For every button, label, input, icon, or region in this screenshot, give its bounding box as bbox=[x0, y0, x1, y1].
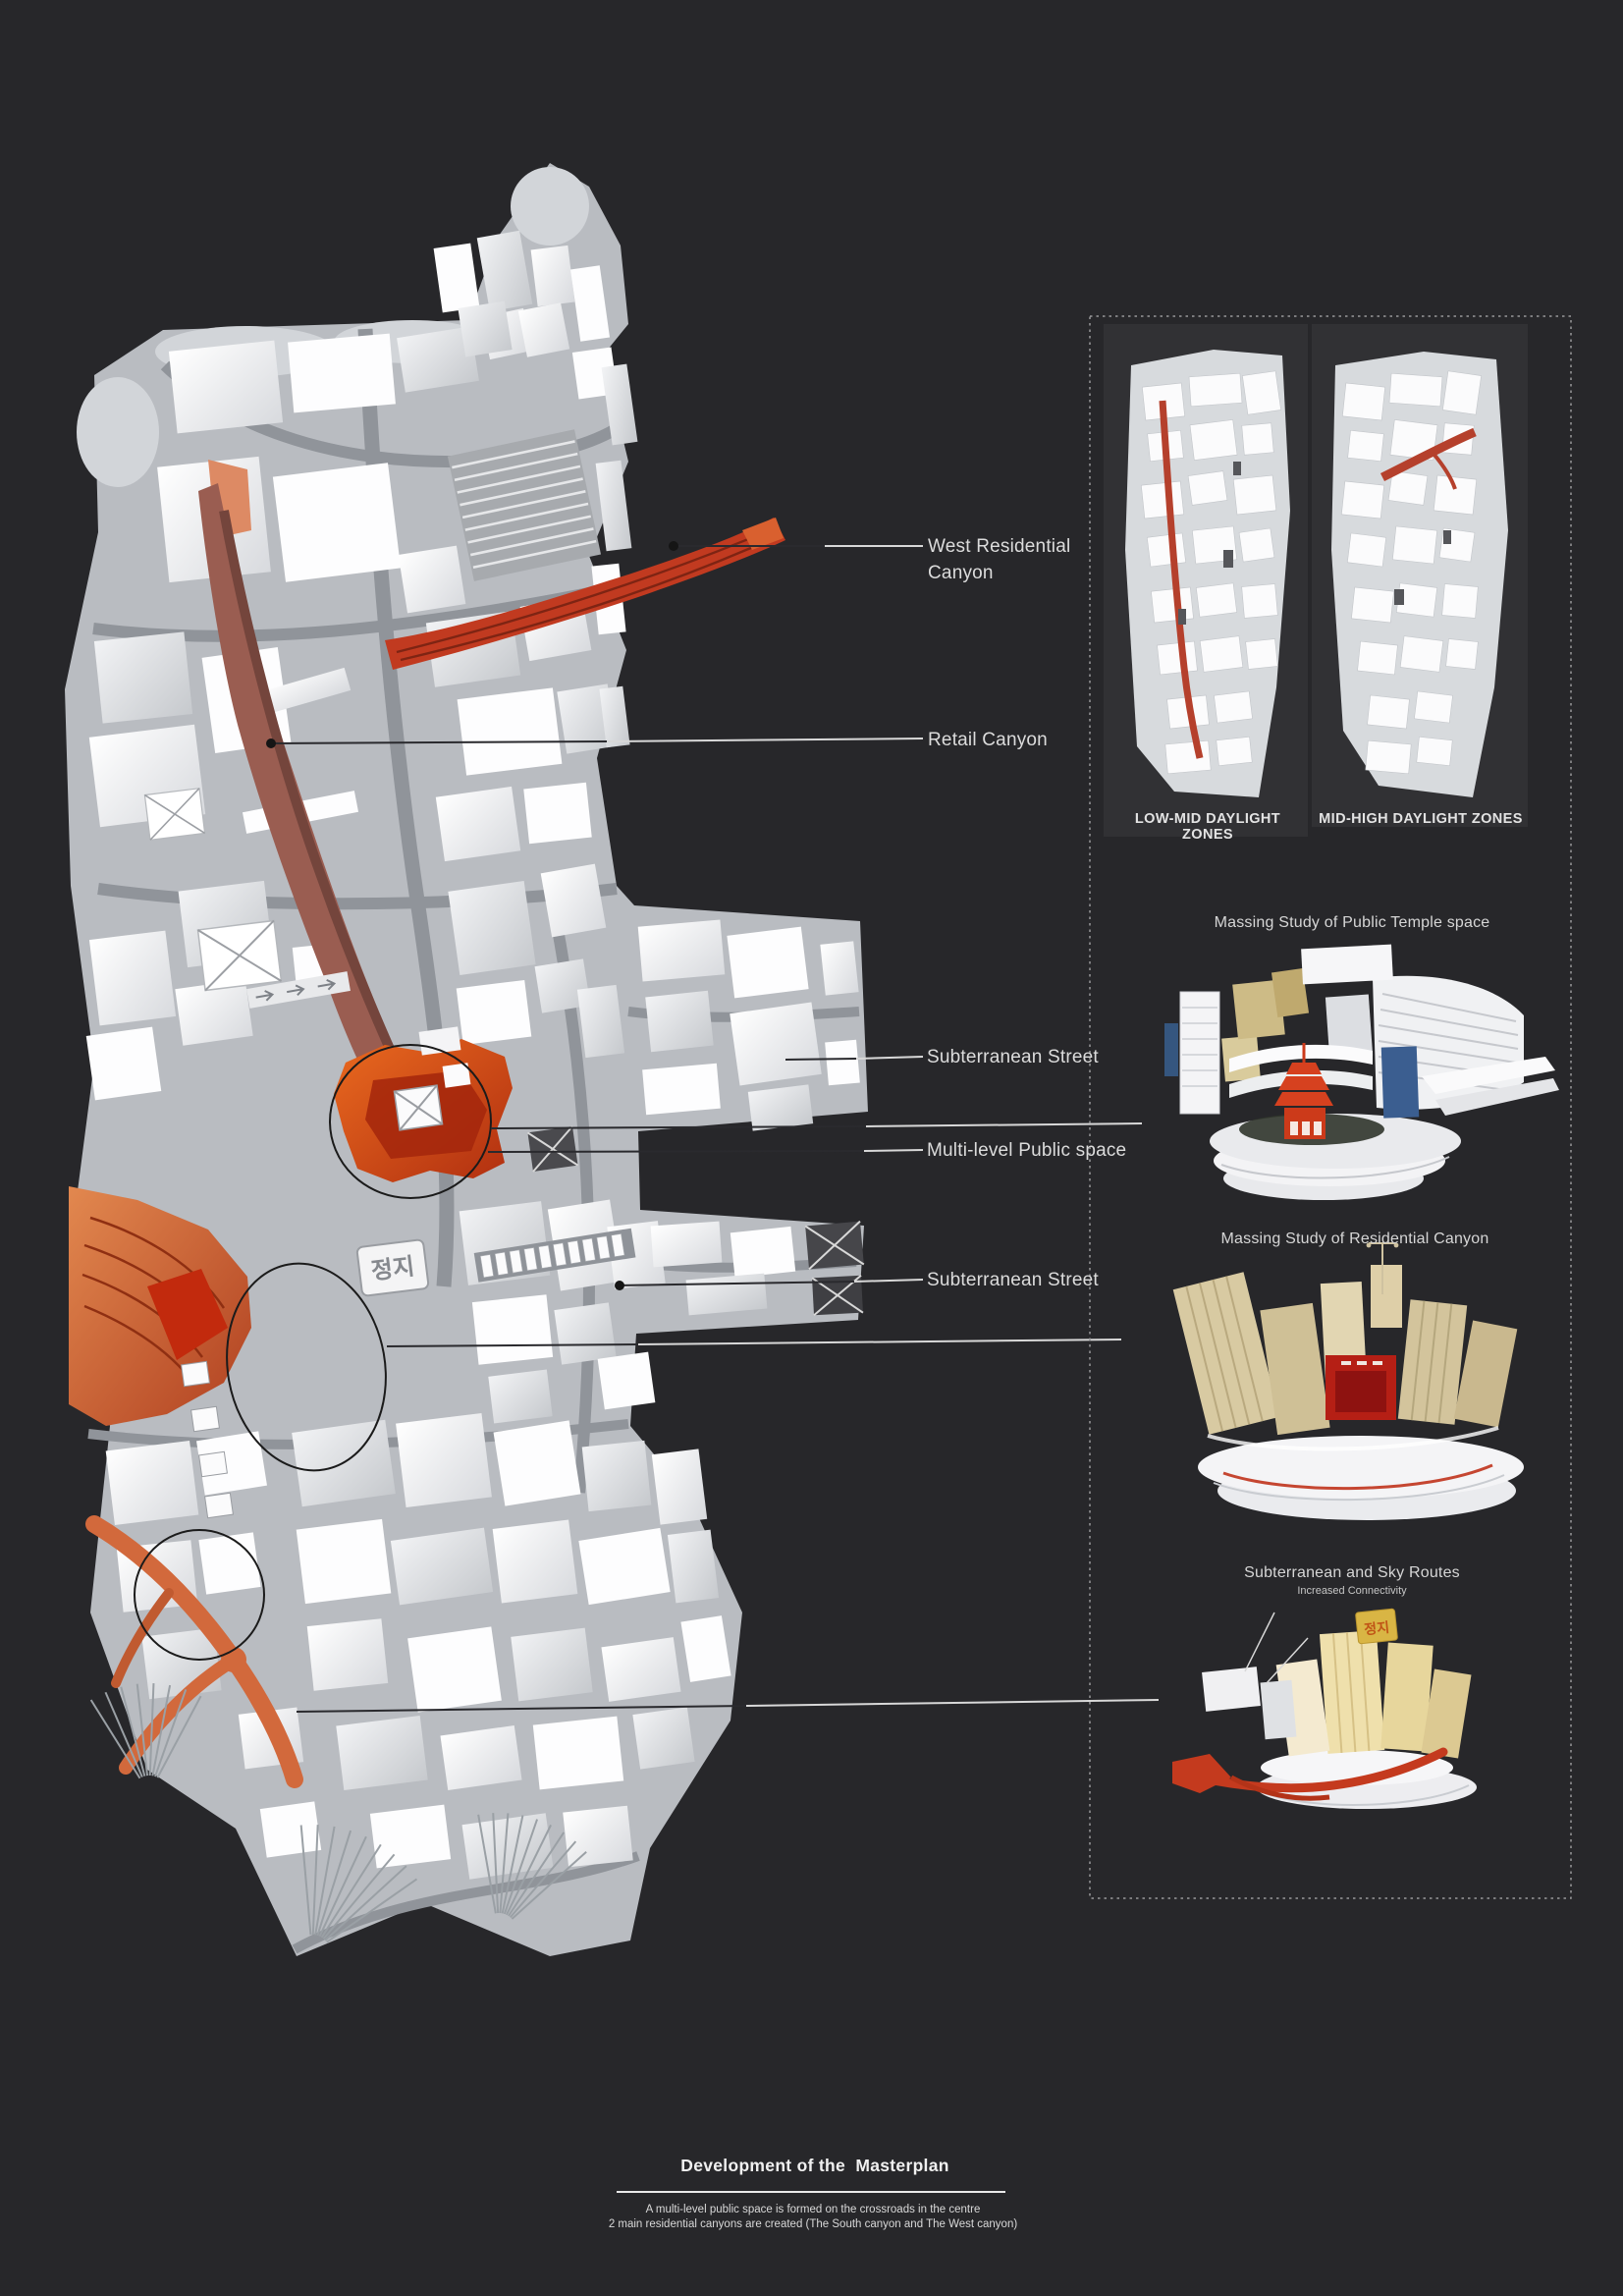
caption-mid-high-daylight: MID-HIGH DAYLIGHT ZONES bbox=[1314, 811, 1528, 827]
stop-sign-text: 정지 bbox=[370, 1253, 416, 1285]
label-subterranean-street-1: Subterranean Street bbox=[927, 1044, 1099, 1070]
title-skyroutes: Subterranean and Sky Routes bbox=[1156, 1564, 1548, 1582]
stop-sign: 정지 bbox=[356, 1239, 429, 1296]
title-massing-canyon: Massing Study of Residential Canyon bbox=[1159, 1230, 1551, 1248]
massing-canyon-image bbox=[1173, 1243, 1524, 1520]
label-subterranean-street-2: Subterranean Street bbox=[927, 1267, 1099, 1293]
hatched-tower bbox=[448, 429, 601, 581]
footer-caption-1: A multi-level public space is formed on … bbox=[518, 2203, 1108, 2217]
subtitle-skyroutes: Increased Connectivity bbox=[1156, 1585, 1548, 1597]
city-model: 정지 bbox=[65, 163, 868, 1956]
daylight-model-left bbox=[1125, 350, 1290, 797]
masterplan-figure: 정지 bbox=[0, 0, 1623, 2296]
side-panel: 정지 bbox=[1090, 316, 1571, 1898]
caption-low-mid-daylight: LOW-MID DAYLIGHT ZONES bbox=[1108, 811, 1308, 843]
label-multi-level-public-space: Multi-level Public space bbox=[927, 1137, 1126, 1164]
label-west-residential-canyon: West Residential Canyon bbox=[928, 533, 1073, 586]
daylight-model-right bbox=[1331, 352, 1508, 797]
skyroutes-stop-sign: 정지 bbox=[1355, 1609, 1397, 1644]
massing-skyroutes-image: 정지 bbox=[1172, 1609, 1477, 1809]
poster-canvas: 정지 bbox=[0, 0, 1623, 2296]
footer-title: Development of the Masterplan bbox=[569, 2156, 1060, 2176]
skyroutes-stop-sign-text: 정지 bbox=[1364, 1619, 1390, 1638]
label-retail-canyon: Retail Canyon bbox=[928, 727, 1048, 753]
footer-rule bbox=[617, 2191, 1005, 2193]
massing-temple-image bbox=[1164, 945, 1559, 1200]
title-massing-temple: Massing Study of Public Temple space bbox=[1156, 914, 1548, 932]
footer-caption-2: 2 main residential canyons are created (… bbox=[518, 2217, 1108, 2232]
